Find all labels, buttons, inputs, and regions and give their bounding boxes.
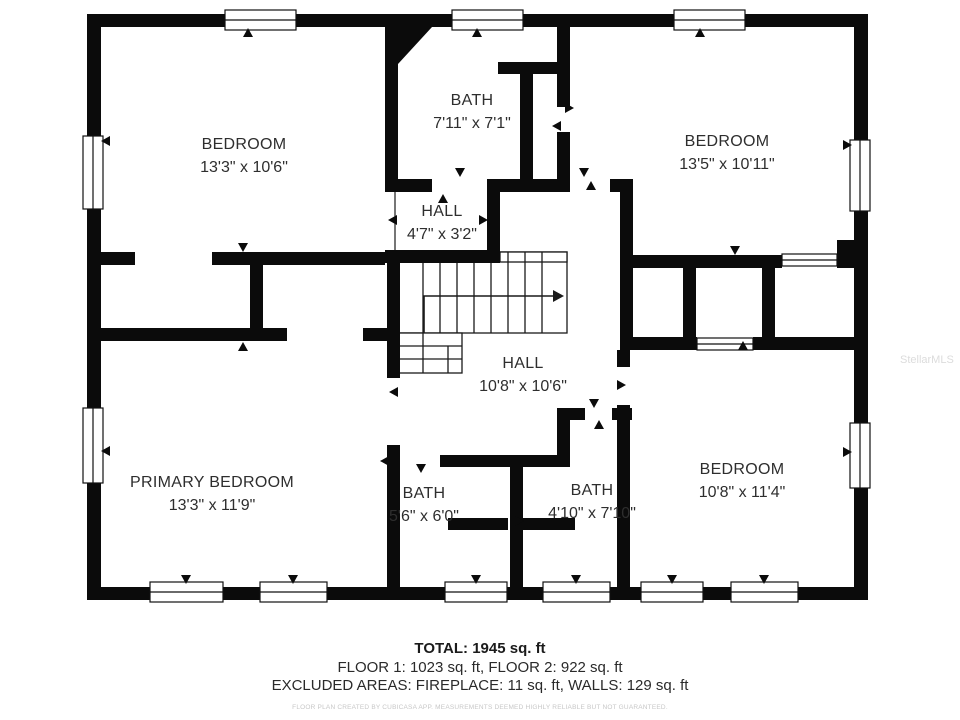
stellar-mls-watermark: StellarMLS: [900, 354, 954, 366]
room-dimensions: 10'8" x 10'6": [479, 375, 567, 398]
room-dimensions: 4'10" x 7'10": [548, 502, 636, 525]
room-name: BEDROOM: [699, 458, 786, 481]
room-dimensions: 13'3" x 10'6": [200, 156, 288, 179]
room-label-bath-top: BATH 7'11" x 7'1": [433, 89, 511, 135]
room-label-bath-bottom-left: BATH 5'6" x 6'0": [389, 482, 459, 528]
room-name: BATH: [389, 482, 459, 505]
room-label-bedroom-bottom-right: BEDROOM 10'8" x 11'4": [699, 458, 786, 504]
total-area-text: TOTAL: 1945 sq. ft: [0, 641, 960, 658]
floor-plan: BEDROOM 13'3" x 10'6" BATH 7'11" x 7'1" …: [0, 0, 960, 720]
room-dimensions: 13'3" x 11'9": [130, 494, 294, 517]
room-name: BEDROOM: [200, 133, 288, 156]
room-label-bedroom-top-left: BEDROOM 13'3" x 10'6": [200, 133, 288, 179]
room-dimensions: 13'5" x 10'11": [679, 153, 774, 176]
disclaimer-text: FLOOR PLAN CREATED BY CUBICASA APP. MEAS…: [0, 704, 960, 711]
room-label-hall-main: HALL 10'8" x 10'6": [479, 352, 567, 398]
room-dimensions: 10'8" x 11'4": [699, 481, 786, 504]
room-label-bedroom-top-right: BEDROOM 13'5" x 10'11": [679, 130, 774, 176]
room-label-hall-small: HALL 4'7" x 3'2": [407, 200, 477, 246]
room-dimensions: 7'11" x 7'1": [433, 112, 511, 135]
room-name: BEDROOM: [679, 130, 774, 153]
room-name: HALL: [407, 200, 477, 223]
room-name: BATH: [433, 89, 511, 112]
room-name: BATH: [548, 479, 636, 502]
excluded-areas-text: EXCLUDED AREAS: FIREPLACE: 11 sq. ft, WA…: [0, 678, 960, 694]
floor-areas-text: FLOOR 1: 1023 sq. ft, FLOOR 2: 922 sq. f…: [0, 660, 960, 676]
room-name: PRIMARY BEDROOM: [130, 471, 294, 494]
room-label-primary-bedroom: PRIMARY BEDROOM 13'3" x 11'9": [130, 471, 294, 517]
room-name: HALL: [479, 352, 567, 375]
room-dimensions: 4'7" x 3'2": [407, 223, 477, 246]
room-dimensions: 5'6" x 6'0": [389, 505, 459, 528]
area-summary: TOTAL: 1945 sq. ft FLOOR 1: 1023 sq. ft,…: [0, 641, 960, 711]
room-label-bath-bottom-right: BATH 4'10" x 7'10": [548, 479, 636, 525]
